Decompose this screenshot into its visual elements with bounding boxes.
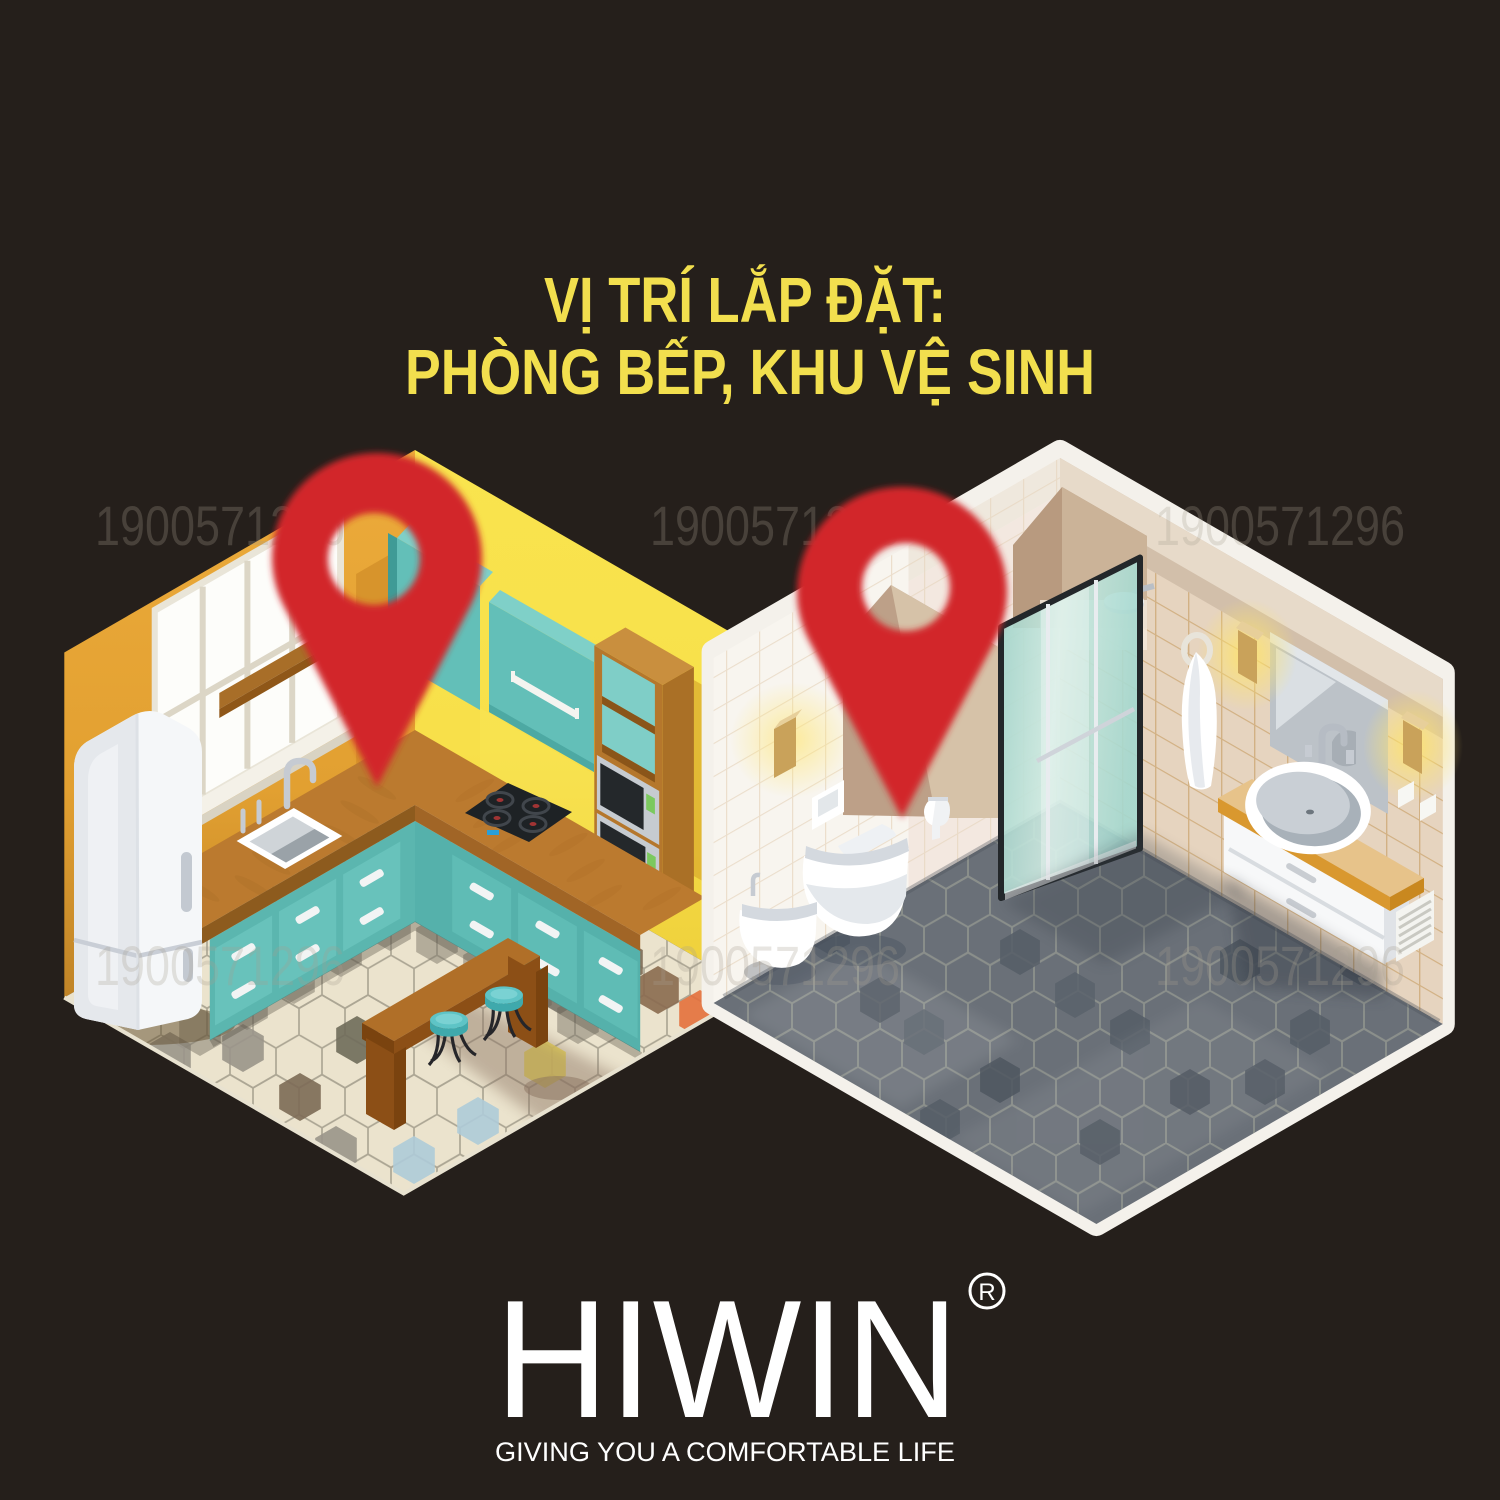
svg-text:1900571296: 1900571296 [1155, 934, 1405, 997]
svg-text:1900571296: 1900571296 [1155, 494, 1405, 557]
svg-text:1900571296: 1900571296 [95, 934, 345, 997]
svg-text:VỊ TRÍ LẮP ĐẶT:: VỊ TRÍ LẮP ĐẶT: [544, 263, 946, 336]
svg-text:1900571296: 1900571296 [650, 934, 900, 997]
svg-text:R: R [978, 1279, 995, 1306]
svg-text:GIVING YOU A COMFORTABLE LIFE: GIVING YOU A COMFORTABLE LIFE [495, 1437, 955, 1467]
svg-text:HIWIN: HIWIN [495, 1265, 959, 1453]
svg-text:PHÒNG BẾP, KHU VỆ SINH: PHÒNG BẾP, KHU VỆ SINH [405, 335, 1095, 408]
